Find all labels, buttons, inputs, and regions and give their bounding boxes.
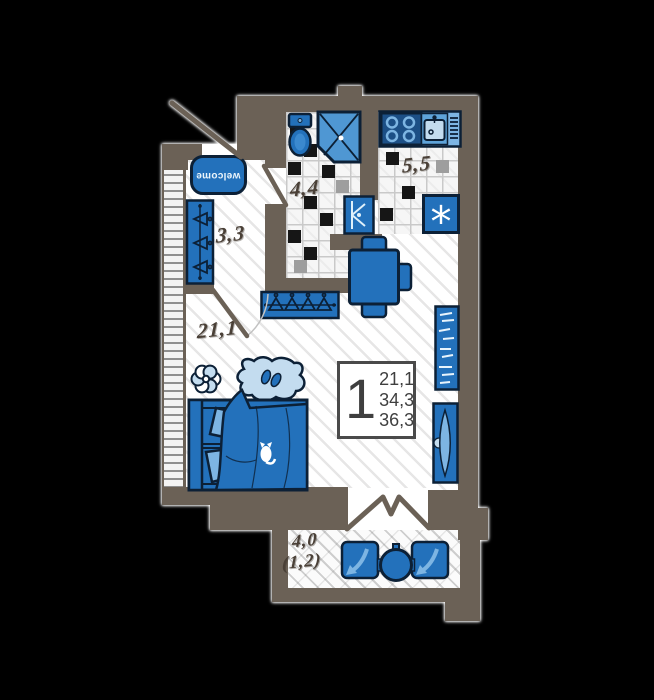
welcome-mat-text: welcome: [196, 170, 240, 181]
dark-tile: [288, 162, 301, 175]
total-area-value: 36,3: [379, 410, 414, 431]
washing-machine-icon: [343, 195, 375, 235]
dark-tile: [380, 208, 393, 221]
living-room-area-label: 21,1: [197, 315, 238, 344]
sink-icon: [422, 114, 448, 145]
fridge-icon: *: [422, 194, 460, 234]
apartment-info-box: 1 21,1 34,3 36,3: [337, 361, 416, 439]
gray-tile: [336, 180, 349, 193]
hallway-area-label: 3,3: [216, 220, 246, 248]
wall-balcony-door-side: [428, 490, 462, 530]
stove-icon: [382, 114, 422, 145]
rooms-count: 1: [345, 364, 376, 436]
armchair-icon: [340, 540, 380, 582]
gray-tile: [294, 260, 307, 273]
wall-top-notch: [338, 86, 362, 98]
toilet-icon: [287, 112, 313, 158]
balcony-area-reduced-label: (1,2): [282, 549, 322, 574]
bed-icon: [186, 396, 310, 494]
kitchen-area-label: 5,5: [402, 150, 432, 178]
bookshelf-icon: [434, 305, 460, 391]
wall-right: [458, 96, 478, 510]
armchair-icon: [410, 540, 450, 582]
tv-stand-icon: [432, 402, 459, 484]
kitchen-counter: [378, 110, 462, 150]
shower-icon: [315, 109, 363, 165]
coat-rack-icon: [260, 289, 340, 321]
wall-balcony-bottom: [278, 588, 460, 602]
window-icon: [162, 166, 186, 492]
floor-plan: welcome *: [0, 0, 654, 700]
dining-table-icon: [345, 235, 413, 319]
floor-plan-canvas: welcome *: [0, 0, 654, 700]
fridge-symbol: *: [431, 199, 452, 234]
dark-tile: [304, 247, 317, 260]
dark-tile: [386, 152, 399, 165]
apartment-area-value: 34,3: [379, 390, 414, 411]
dark-tile: [402, 186, 415, 199]
welcome-mat: welcome: [190, 155, 247, 195]
gray-tile: [436, 160, 449, 173]
wall-right-step: [458, 508, 488, 540]
headboard: [189, 400, 202, 490]
wall-bathroom-west-upper: [265, 96, 286, 168]
dark-tile: [288, 230, 301, 243]
dark-tile: [322, 165, 335, 178]
living-area-value: 21,1: [379, 369, 414, 390]
bathroom-area-label: 4,4: [290, 174, 320, 202]
plant-icon: [188, 362, 224, 396]
wall-entry-connector: [237, 96, 268, 160]
wardrobe-icon: [185, 199, 215, 285]
balcony-table-icon: [377, 543, 415, 583]
balcony-door-threshold: [344, 488, 432, 530]
dark-tile: [320, 213, 333, 226]
